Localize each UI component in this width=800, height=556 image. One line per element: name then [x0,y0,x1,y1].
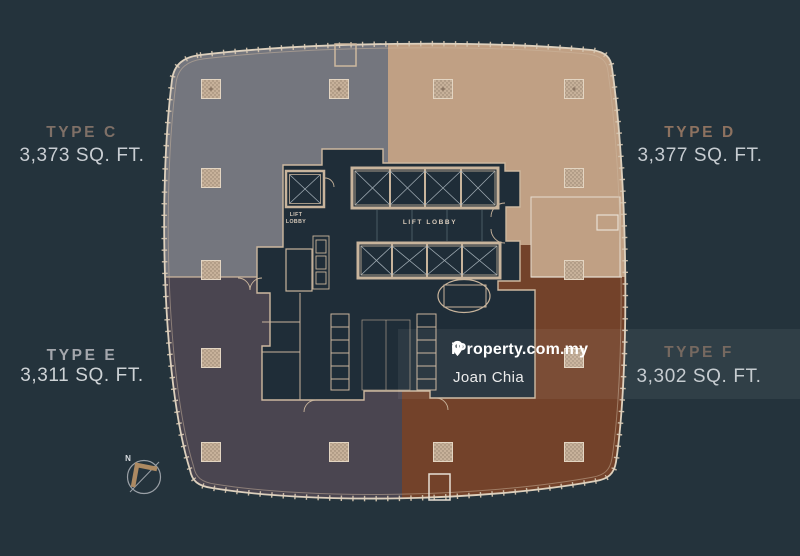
column-marker [330,443,349,462]
north-label: N [125,454,131,463]
lift-lobby-label: LIFT LOBBY [403,219,457,226]
column-marker [565,169,584,188]
unit-type-c-area: 3,373 SQ. FT. [19,145,144,166]
unit-type-f-area: 3,302 SQ. FT. [636,366,761,387]
unit-type-f-label: TYPE F [664,344,734,361]
unit-type-c-label: TYPE C [46,124,118,141]
watermark-brand-row: iProperty.com.my [451,340,588,359]
column-marker [565,80,584,99]
floor-plan-graphic: LIFT LOBBY LIFT LOBBY TYPE C 3,373 SQ. F… [0,0,800,556]
unit-type-e-area: 3,311 SQ. FT. [20,365,144,386]
watermark-agent: Joan Chia [453,369,588,386]
unit-type-e-label: TYPE E [47,347,118,364]
column-marker [565,261,584,280]
compass: N [125,454,160,494]
column-marker [202,349,221,368]
column-marker [565,443,584,462]
lift-lobby-small-label-1: LIFT [290,212,303,218]
column-marker [330,80,349,99]
lift-lobby-small-label-2: LOBBY [286,219,306,225]
watermark-brand: iProperty.com.my [451,340,588,359]
unit-type-d-area: 3,377 SQ. FT. [637,145,762,166]
floor-plan-canvas: LIFT LOBBY LIFT LOBBY TYPE C 3,373 SQ. F… [0,0,800,556]
location-pin-icon [451,340,464,357]
unit-type-d-label: TYPE D [664,124,736,141]
column-marker [202,80,221,99]
column-marker [202,261,221,280]
column-marker [202,169,221,188]
column-marker [434,80,453,99]
column-marker [434,443,453,462]
column-marker [202,443,221,462]
watermark: iProperty.com.my Joan Chia [451,340,588,386]
